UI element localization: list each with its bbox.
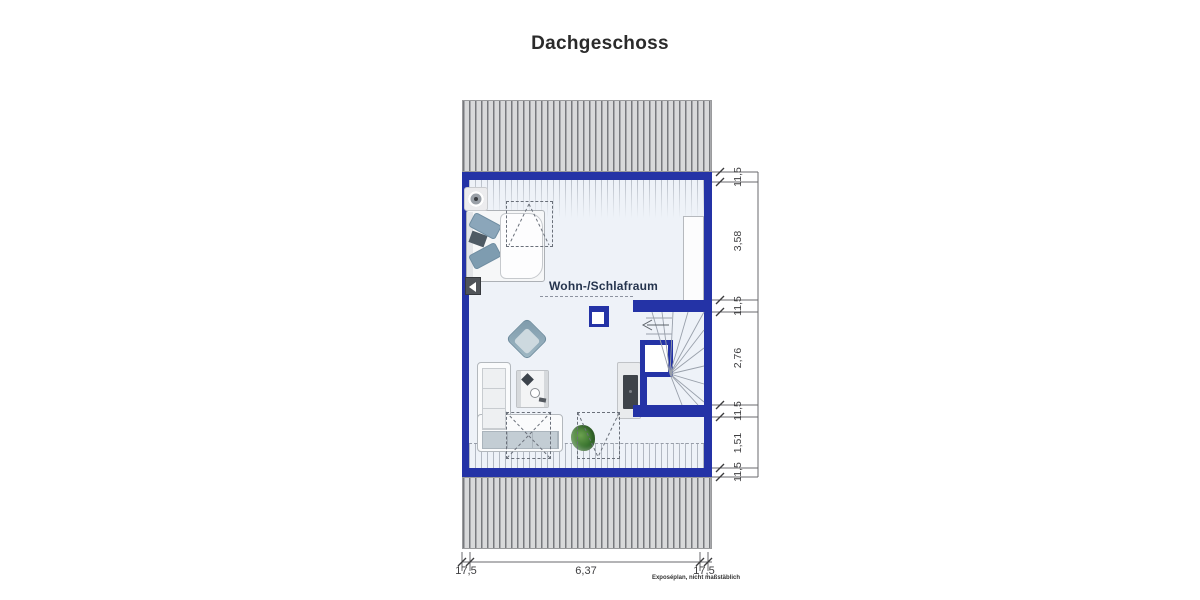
stair-top-wall — [633, 300, 704, 312]
dim-right-4: 11,5 — [732, 401, 744, 421]
stair-newel — [640, 340, 673, 377]
coffee-table-book — [521, 373, 534, 386]
wardrobe — [683, 216, 704, 301]
tv-dot — [629, 390, 632, 393]
stair-left-wall — [640, 372, 647, 417]
coffee-table-rail-left — [517, 371, 521, 407]
roof-window-b — [577, 412, 620, 459]
dormer-window-dashed — [506, 201, 553, 247]
tv-icon — [623, 375, 638, 409]
dim-right-2: 11,5 — [732, 296, 744, 316]
floor-plan-page: Dachgeschoss — [0, 0, 1200, 600]
dim-right-0: 11,5 — [732, 167, 744, 187]
dim-right-1: 3,58 — [732, 231, 744, 251]
roof-window-a — [506, 412, 551, 459]
height-line-dashed — [540, 296, 633, 297]
ceiling-lamp-dot — [474, 197, 478, 201]
dim-right-5: 1,51 — [732, 433, 744, 453]
chimney — [589, 306, 609, 327]
room-label: Wohn-/Schlafraum — [549, 279, 658, 293]
sofa-cushions-left — [482, 368, 506, 430]
coffee-table — [516, 370, 549, 408]
dim-right-6: 11,5 — [732, 462, 744, 482]
right-dim-slashes — [716, 168, 724, 481]
coffee-table-remote — [539, 397, 547, 402]
wall-lamp-triangle — [469, 282, 476, 292]
wall-lamp-icon — [465, 277, 481, 295]
dim-right-3: 2,76 — [732, 348, 744, 368]
roof-hatch-bottom — [462, 477, 712, 549]
dim-bottom-0: 17,5 — [455, 565, 476, 577]
disclaimer-text: Exposéplan, nicht maßstäblich — [600, 575, 740, 581]
dim-bottom-1: 6,37 — [575, 565, 596, 577]
roof-hatch-top — [462, 100, 712, 172]
page-title: Dachgeschoss — [0, 33, 1200, 55]
armchair-seat — [514, 328, 541, 355]
